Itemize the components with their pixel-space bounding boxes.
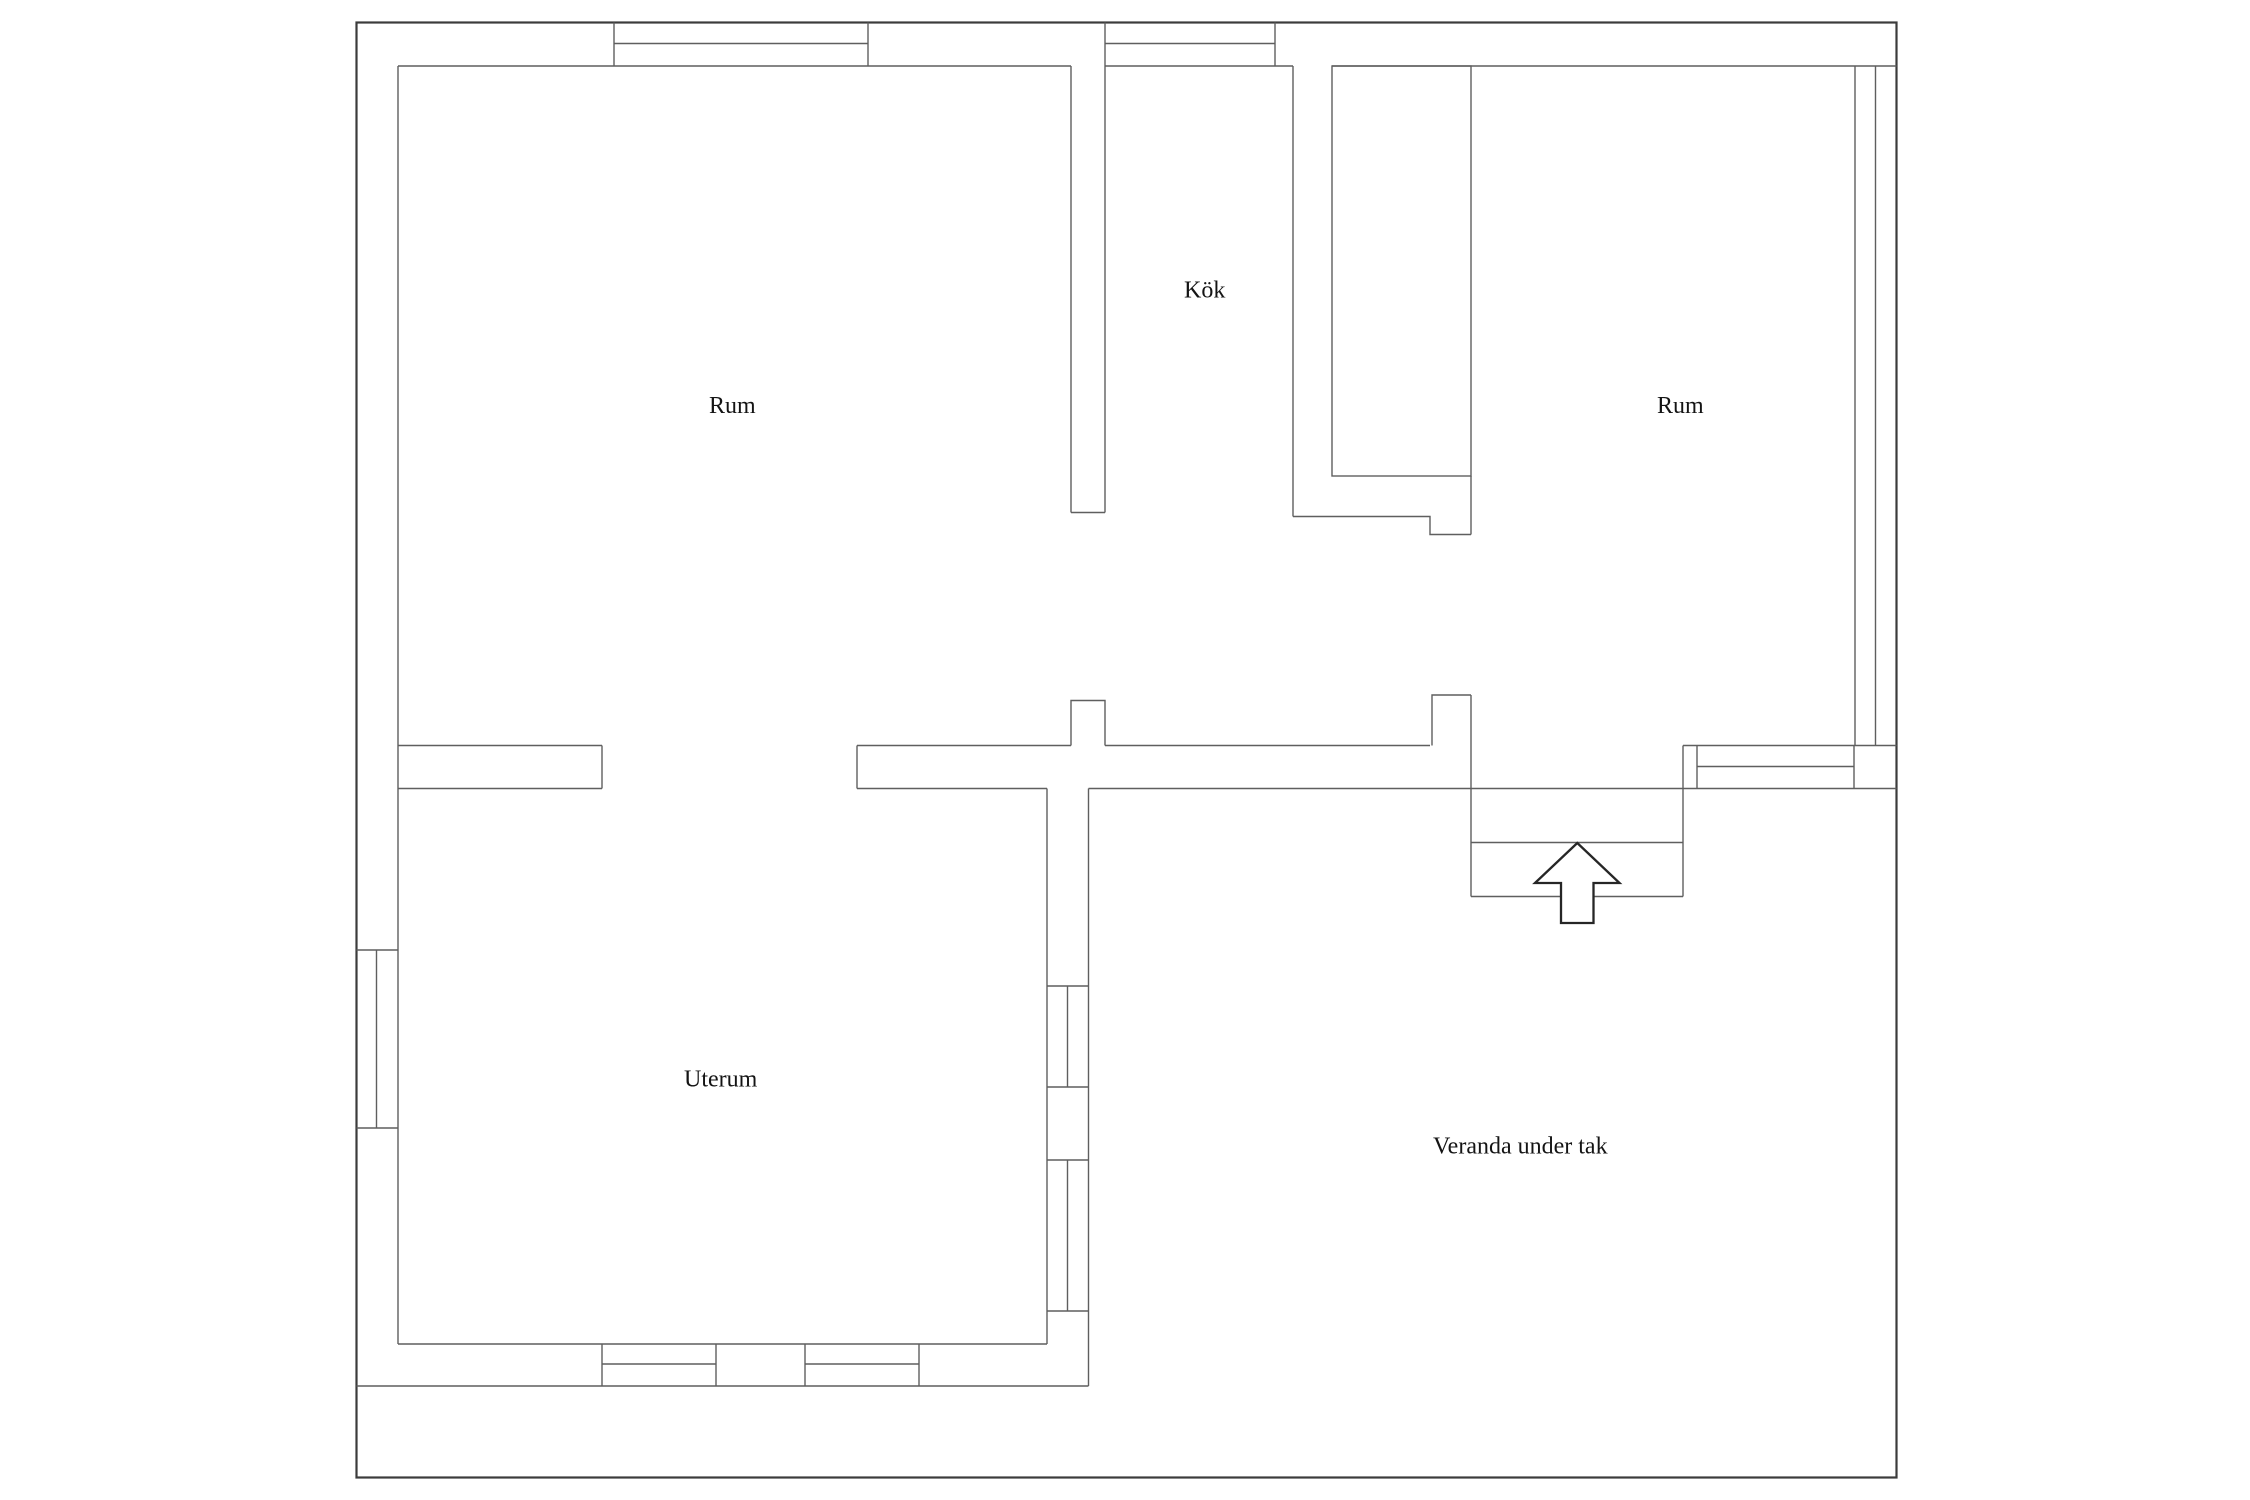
svg-text:Rum: Rum bbox=[1657, 393, 1704, 419]
svg-text:Veranda under tak: Veranda under tak bbox=[1433, 1134, 1608, 1160]
svg-text:Uterum: Uterum bbox=[684, 1067, 758, 1093]
svg-text:Kök: Kök bbox=[1184, 278, 1225, 304]
svg-text:Rum: Rum bbox=[709, 393, 756, 419]
